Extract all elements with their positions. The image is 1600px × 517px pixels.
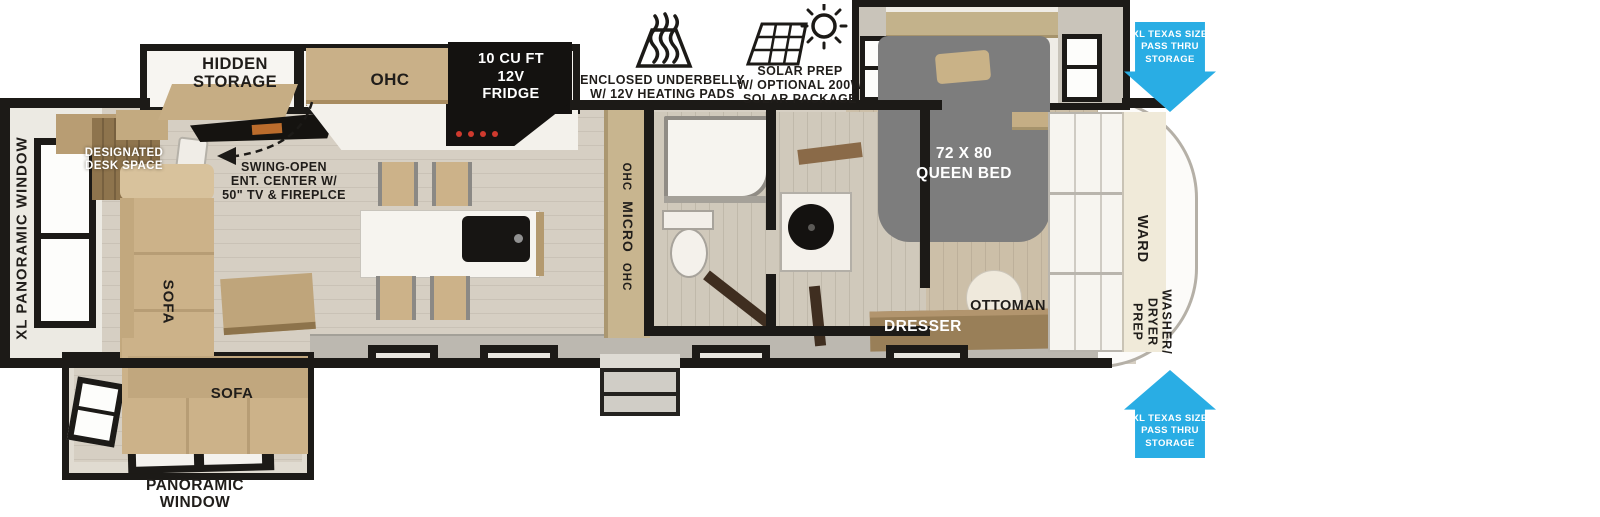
entry-steps [600, 368, 680, 416]
island-stool [432, 162, 472, 206]
sofa-rear-seat [128, 398, 308, 454]
bottom-wall-window [692, 345, 770, 362]
window-pane [488, 353, 550, 358]
wall-top-rear [0, 98, 150, 108]
wall-rear-cap [0, 98, 10, 368]
coffee-table [220, 273, 316, 335]
window-pane [700, 353, 762, 358]
bathroom-divider-upper [766, 108, 776, 230]
bed-pillow [935, 50, 991, 85]
cooktop-knob [468, 131, 474, 137]
bottom-wall-window [886, 345, 968, 362]
pantry-ohc-upper: OHC [620, 163, 632, 192]
entry-step-divider [604, 392, 676, 396]
toilet-bowl [670, 228, 708, 278]
bedroom-window-right-divider [1065, 65, 1099, 69]
ohc-label: OHC [360, 70, 420, 89]
wardrobe-shelf-divider [1050, 192, 1124, 195]
solar-label: SOLAR PREP W/ OPTIONAL 200W SOLAR PACKAG… [715, 64, 885, 106]
xl-panoramic-window-label: XL PANORAMIC WINDOW [14, 136, 31, 339]
cooktop-knob [492, 131, 498, 137]
bathroom-wall-left [644, 108, 654, 336]
island-stool [430, 276, 470, 320]
panoramic-window-label: PANORAMIC WINDOW [133, 477, 257, 512]
pantry-micro: MICRO [620, 201, 636, 253]
island-wood-edge [536, 212, 544, 276]
shower-sill [664, 196, 770, 203]
pass-thru-bottom-label: XL TEXAS SIZE PASS THRU STORAGE [1124, 413, 1216, 450]
fridge-label: 10 CU FT 12V FRIDGE [455, 51, 567, 104]
queen-bed-label: 72 X 80 QUEEN BED [878, 144, 1050, 184]
rv-floorplan: XL TEXAS SIZE PASS THRU STORAGE XL TEXAS… [0, 0, 1600, 517]
island-stool [378, 162, 418, 206]
rear-window-divider [41, 233, 89, 239]
pantry-label: OHCMICROOHC [620, 163, 636, 292]
pass-thru-arrow-bottom: XL TEXAS SIZE PASS THRU STORAGE [1124, 370, 1216, 458]
bottom-wall-window [480, 345, 558, 362]
ent-center-label: SWING-OPEN ENT. CENTER W/ 50" TV & FIREP… [205, 160, 363, 202]
hidden-storage-label: HIDDEN STORAGE [165, 55, 305, 92]
dresser-label: DRESSER [884, 318, 994, 335]
bed-headboard-shelf [886, 12, 1058, 38]
cooktop-knob [456, 131, 462, 137]
sink-faucet [514, 234, 523, 243]
sofa-rear-label: SOFA [192, 386, 272, 403]
wardrobe [1048, 112, 1126, 352]
island-stool [376, 276, 416, 320]
toilet-tank [662, 210, 714, 230]
solar-prep-icon [738, 4, 850, 70]
shower [664, 116, 770, 200]
window-pane [376, 353, 430, 358]
pantry-ohc-lower: OHC [620, 263, 632, 292]
pass-thru-top-label: XL TEXAS SIZE PASS THRU STORAGE [1124, 29, 1216, 66]
ottoman-label: OTTOMAN [952, 298, 1064, 314]
cooktop-knob [480, 131, 486, 137]
window-pane [136, 452, 194, 467]
bathroom-divider-lower [766, 274, 776, 336]
washer-dryer-prep-label: WASHER/ DRYER PREP [1130, 289, 1173, 354]
window-pane [894, 353, 960, 358]
sofa-side-label: SOFA [160, 280, 177, 325]
bottom-wall-window [368, 345, 438, 362]
heating-pads-icon [622, 6, 706, 70]
wardrobe-shelf-divider [1050, 272, 1124, 275]
bathroom-wall-right [920, 108, 930, 288]
ward-label: WARD [1134, 215, 1150, 263]
vessel-sink-drain [808, 224, 815, 231]
desk-label: DESIGNATED DESK SPACE [64, 147, 184, 173]
